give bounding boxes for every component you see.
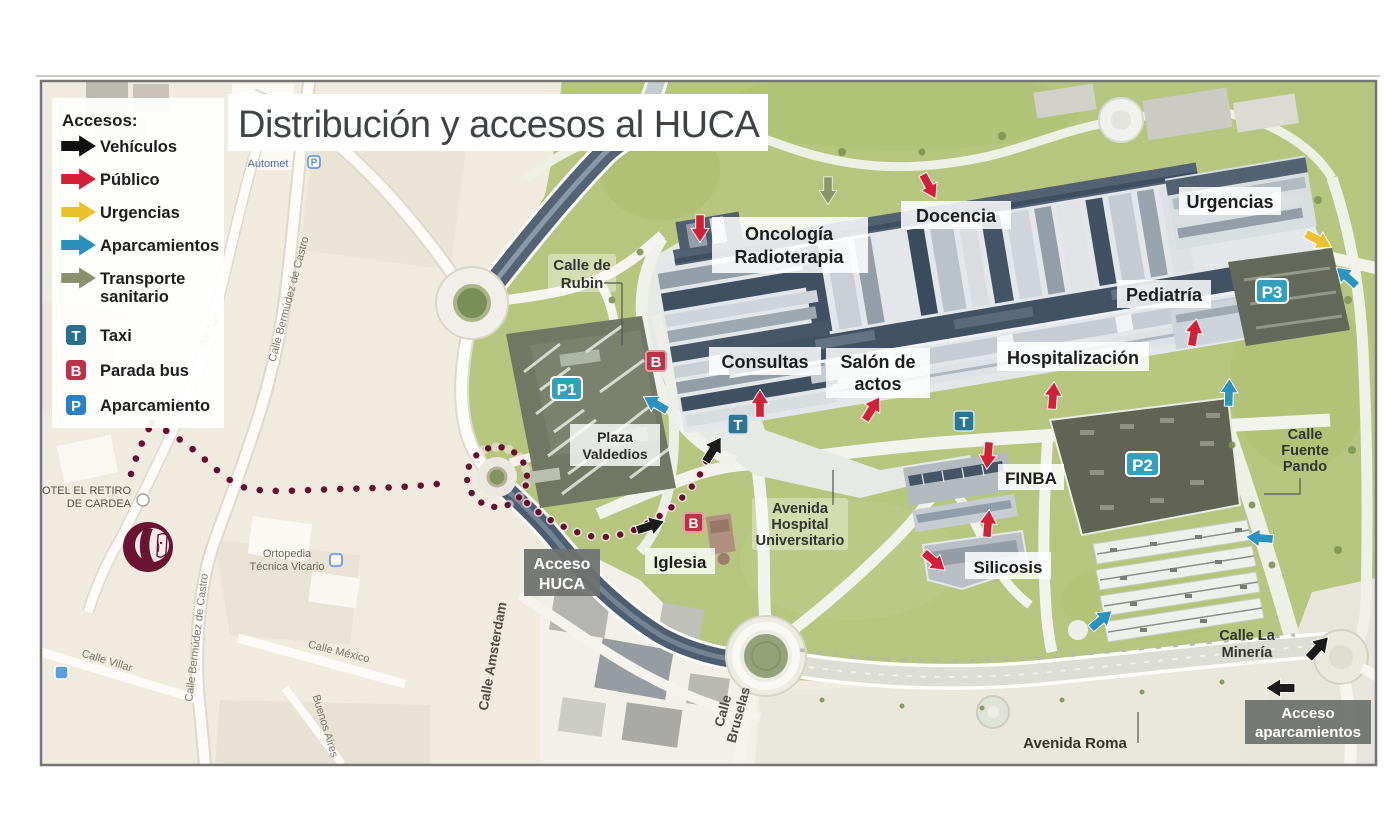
svg-text:Acceso: Acceso <box>1281 705 1334 722</box>
svg-text:B: B <box>688 515 698 531</box>
svg-text:Hospital: Hospital <box>771 517 828 533</box>
svg-text:actos: actos <box>854 374 901 394</box>
svg-text:Iglesia: Iglesia <box>654 553 707 572</box>
svg-text:T: T <box>733 417 742 434</box>
svg-text:Transporte: Transporte <box>100 270 185 288</box>
svg-text:P: P <box>71 398 81 415</box>
svg-text:Parada bus: Parada bus <box>100 362 189 380</box>
svg-text:Urgencias: Urgencias <box>100 204 180 222</box>
svg-text:Rubin: Rubin <box>561 275 604 292</box>
svg-text:Radioterapia: Radioterapia <box>734 247 844 267</box>
svg-text:T: T <box>959 414 968 431</box>
svg-text:Accesos:: Accesos: <box>62 111 138 130</box>
svg-text:T: T <box>71 328 80 345</box>
svg-text:Consultas: Consultas <box>721 352 808 372</box>
svg-text:P: P <box>311 158 318 169</box>
svg-text:Avenida: Avenida <box>772 501 829 517</box>
svg-text:Técnica Vicario: Técnica Vicario <box>250 561 325 573</box>
svg-text:Pediatría: Pediatría <box>1126 285 1203 305</box>
svg-text:Distribución y accesos al HUCA: Distribución y accesos al HUCA <box>238 104 761 146</box>
svg-text:Hospitalización: Hospitalización <box>1007 348 1139 368</box>
svg-text:aparcamientos: aparcamientos <box>1255 724 1361 741</box>
svg-text:Minería: Minería <box>1222 645 1274 661</box>
svg-text:P1: P1 <box>557 382 577 399</box>
svg-text:Automet: Automet <box>248 158 289 170</box>
svg-text:Salón de: Salón de <box>840 352 915 372</box>
svg-text:Aparcamientos: Aparcamientos <box>100 237 219 255</box>
svg-text:HUCA: HUCA <box>539 576 586 593</box>
svg-text:sanitario: sanitario <box>100 288 169 306</box>
svg-text:DE CARDEA: DE CARDEA <box>67 498 132 510</box>
svg-text:Oncología: Oncología <box>745 224 834 244</box>
svg-text:Docencia: Docencia <box>916 206 997 226</box>
svg-text:Ortopedia: Ortopedia <box>263 548 312 560</box>
svg-text:B: B <box>651 354 662 371</box>
svg-text:Urgencias: Urgencias <box>1186 192 1273 212</box>
svg-text:B: B <box>71 363 82 380</box>
svg-text:Silicosis: Silicosis <box>974 558 1043 577</box>
svg-text:P3: P3 <box>1262 283 1283 302</box>
svg-text:Vehículos: Vehículos <box>100 138 177 156</box>
svg-text:FINBA: FINBA <box>1005 469 1057 488</box>
svg-text:Universitario: Universitario <box>756 533 845 549</box>
svg-text:Taxi: Taxi <box>100 327 132 345</box>
svg-text:Calle La: Calle La <box>1219 628 1276 644</box>
svg-text:Pando: Pando <box>1283 459 1327 475</box>
svg-text:Acceso: Acceso <box>534 556 591 573</box>
svg-text:Calle: Calle <box>1288 427 1323 443</box>
svg-text:Avenida Roma: Avenida Roma <box>1023 735 1127 752</box>
svg-text:Plaza: Plaza <box>597 429 633 445</box>
svg-text:P2: P2 <box>1132 456 1153 475</box>
svg-text:Calle de: Calle de <box>553 257 611 274</box>
svg-text:Valdedios: Valdedios <box>582 446 648 462</box>
svg-text:Público: Público <box>100 171 160 189</box>
svg-text:Fuente: Fuente <box>1281 443 1329 459</box>
svg-text:Aparcamiento: Aparcamiento <box>100 397 210 415</box>
svg-text:HOTEL EL RETIRO: HOTEL EL RETIRO <box>34 485 131 497</box>
